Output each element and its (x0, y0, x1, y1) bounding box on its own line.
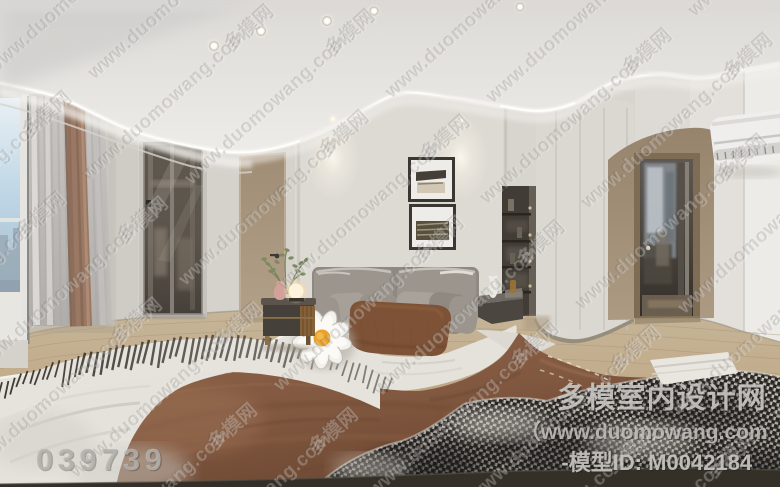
svg-text:-模型ID: M0042184: -模型ID: M0042184 (561, 450, 753, 475)
svg-text:（www.duomowang.com: （www.duomowang.com (520, 420, 768, 444)
svg-text:039739: 039739 (36, 442, 166, 477)
svg-text:多模室内设计网: 多模室内设计网 (557, 381, 767, 415)
